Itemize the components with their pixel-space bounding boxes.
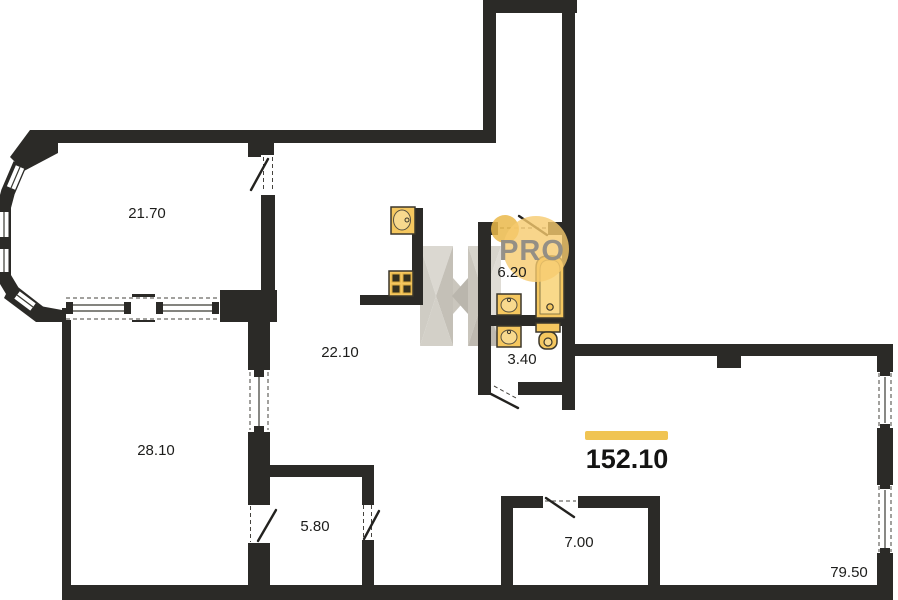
toilet-icon [536, 323, 560, 349]
floorplan-image: PRO 21.70 28.10 22.10 6.20 3.40 5.80 7.0… [0, 0, 898, 600]
pro-badge-label: PRO [499, 235, 565, 267]
kitchen-sink-icon [391, 207, 415, 234]
room-area-label: 3.40 [507, 351, 536, 368]
room-area-label: 6.20 [497, 264, 526, 281]
total-area-value: 152.10 [586, 444, 669, 474]
room-area-label: 79.50 [830, 564, 868, 581]
stove-icon [389, 271, 413, 296]
room-area-label: 7.00 [564, 534, 593, 551]
sink-icon [497, 326, 521, 347]
sink-icon [497, 294, 521, 315]
room-area-label: 5.80 [300, 518, 329, 535]
room-area-label: 21.70 [128, 205, 166, 222]
total-area: 152.10 [585, 431, 668, 474]
room-area-label: 22.10 [321, 344, 359, 361]
total-area-accent-bar [585, 431, 668, 440]
room-area-label: 28.10 [137, 442, 175, 459]
floorplan-svg: PRO 21.70 28.10 22.10 6.20 3.40 5.80 7.0… [0, 0, 898, 600]
